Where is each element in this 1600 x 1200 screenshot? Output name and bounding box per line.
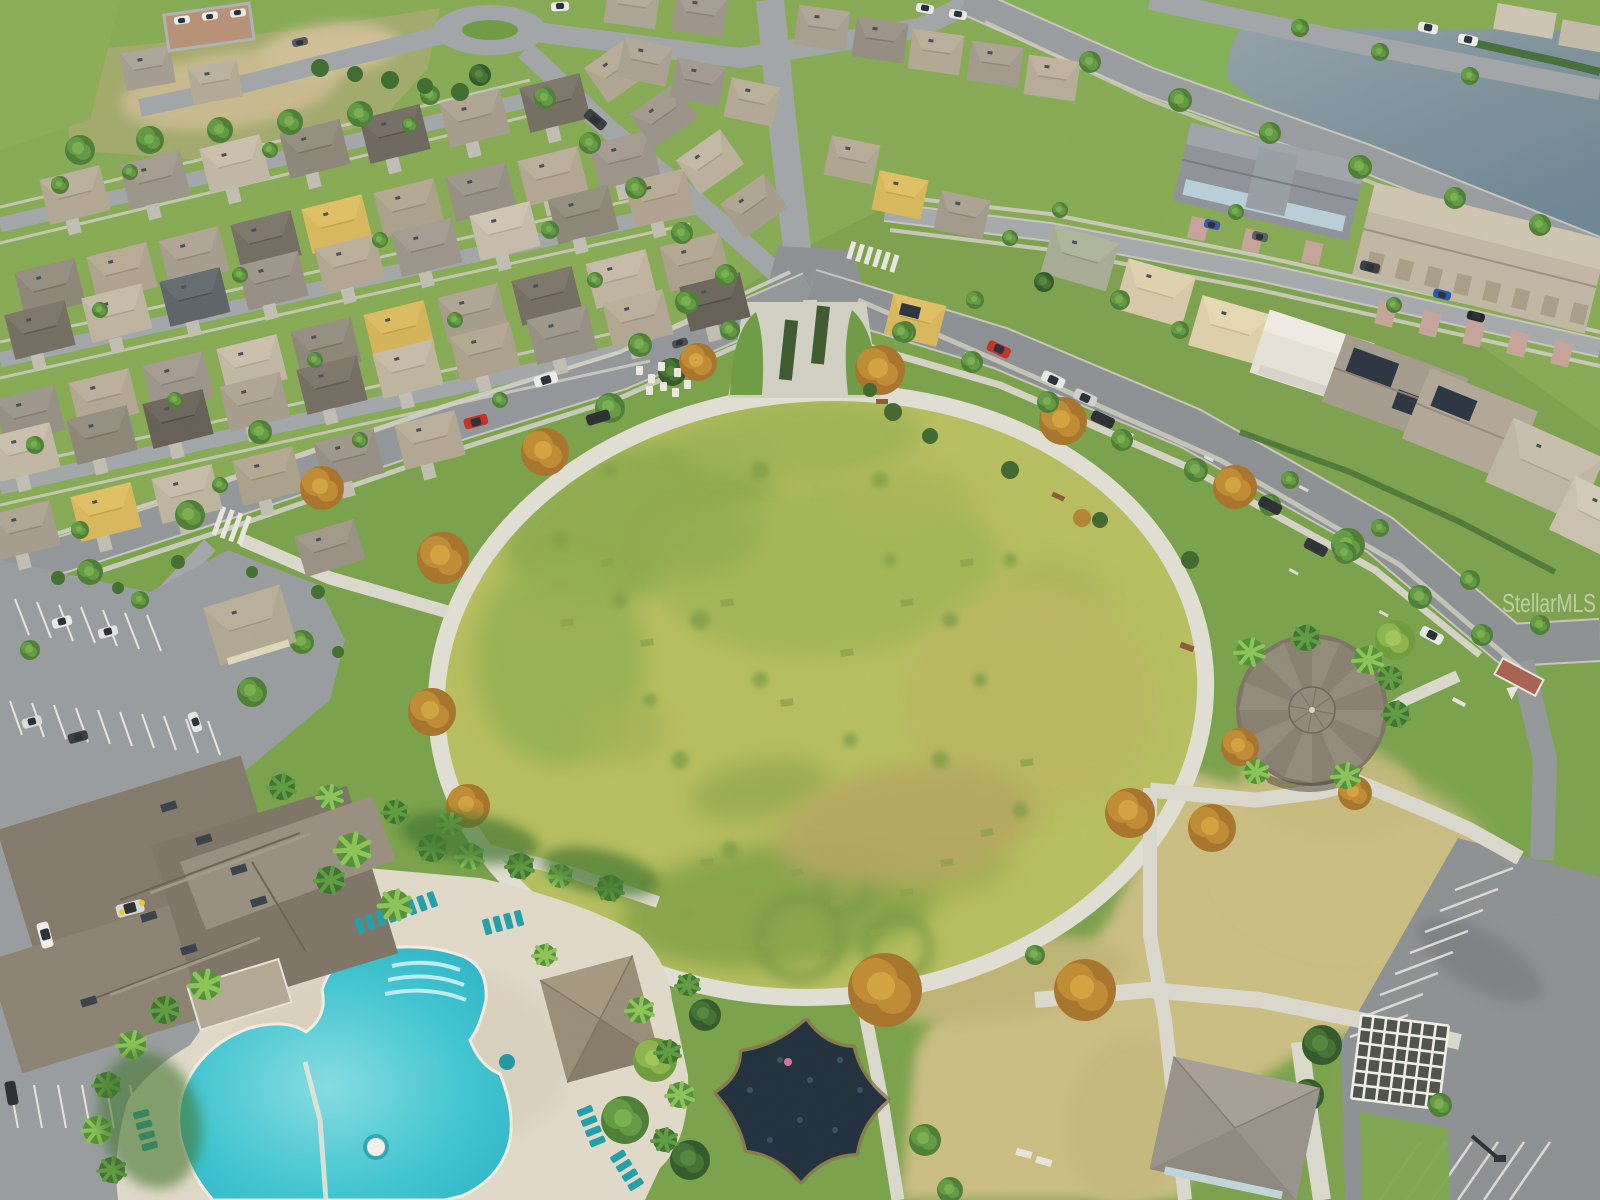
svg-text:StellarMLS: StellarMLS — [1502, 588, 1596, 618]
